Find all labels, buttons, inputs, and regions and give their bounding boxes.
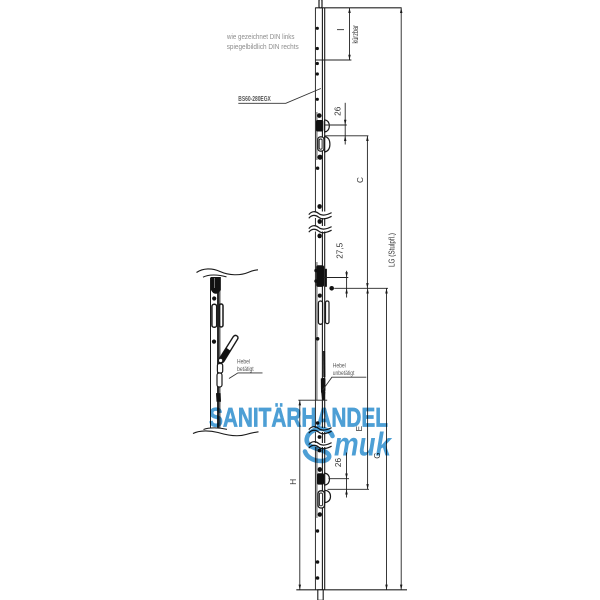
svg-text:27,5: 27,5	[335, 242, 344, 258]
svg-text:C: C	[356, 177, 365, 183]
svg-text:betätigt: betätigt	[237, 367, 254, 373]
svg-text:spiegelbildlich DIN rechts: spiegelbildlich DIN rechts	[227, 42, 299, 51]
svg-text:kürzbar: kürzbar	[351, 25, 360, 44]
svg-text:26: 26	[334, 106, 343, 116]
svg-text:unbetätigt: unbetätigt	[333, 371, 355, 377]
svg-text:LG (Stulpfl.): LG (Stulpfl.)	[388, 233, 397, 267]
svg-text:I: I	[336, 28, 347, 31]
svg-text:Hebel: Hebel	[333, 364, 346, 370]
svg-text:BS60-280EGX: BS60-280EGX	[238, 94, 271, 103]
svg-text:wie gezeichnet DIN links: wie gezeichnet DIN links	[226, 32, 294, 41]
svg-text:muk: muk	[334, 426, 392, 463]
svg-text:H: H	[289, 479, 298, 485]
svg-text:Hebel: Hebel	[237, 360, 250, 366]
